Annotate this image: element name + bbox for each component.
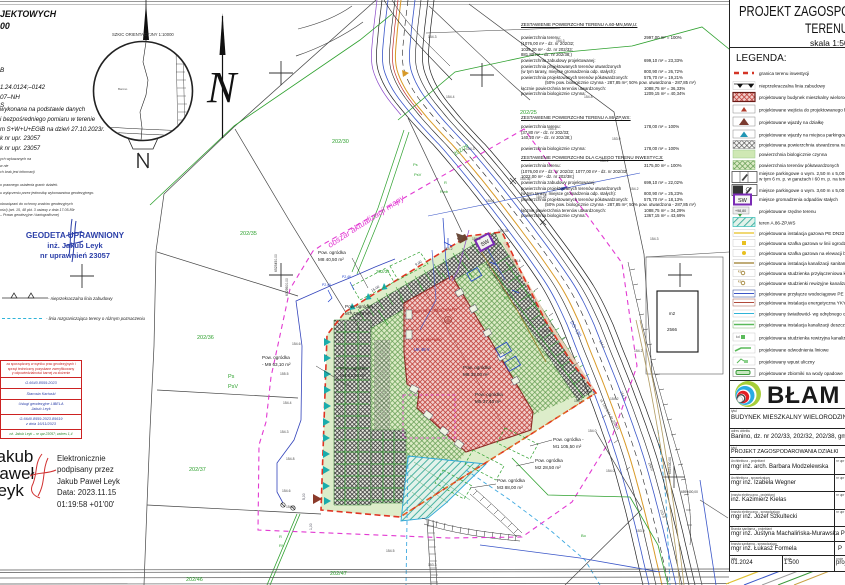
svg-text:154.3: 154.3 [466, 147, 475, 151]
svg-text:+98,80: +98,80 [735, 209, 746, 213]
svg-text:R: R [444, 180, 447, 185]
svg-text:Banino: Banino [118, 87, 128, 91]
svg-text:projektowane przyłącze wodocią: projektowane przyłącze wodociągowe PE DN [759, 292, 845, 297]
svg-text:N: N [206, 63, 239, 112]
svg-text:projektowana instalacja kanali: projektowana instalacja kanalizacji desz… [759, 323, 845, 328]
svg-text:154.1: 154.1 [528, 299, 537, 303]
svg-text:teren A.86-ZP,WS: teren A.86-ZP,WS [759, 221, 795, 226]
svg-text:projektowany wpust uliczny: projektowany wpust uliczny [759, 360, 815, 365]
svg-text:154.0: 154.0 [647, 462, 654, 471]
svg-text:granica terenu inwestycji: granica terenu inwestycji [759, 71, 809, 76]
svg-text:154.3: 154.3 [280, 430, 289, 434]
svg-text:154.1: 154.1 [619, 391, 627, 400]
svg-text:Pow. ogródka: Pow. ogródka [340, 366, 368, 371]
svg-text:Pow. ogródka: Pow. ogródka [535, 458, 563, 463]
svg-text:M3 88,00 m²: M3 88,00 m² [497, 485, 523, 490]
svg-text:154.4: 154.4 [512, 259, 521, 263]
svg-text:projektowany budynek mieszkaln: projektowany budynek mieszkalny wielorod… [759, 95, 845, 100]
svg-text:Rwb: Rwb [440, 189, 449, 194]
svg-text:obszar aktualizacji mapy: obszar aktualizacji mapy [326, 193, 406, 250]
svg-text:miejsce parkingowe o wym. 3,60: miejsce parkingowe o wym. 3,60 m x 5,00 … [759, 188, 845, 193]
svg-text:m2: m2 [669, 311, 676, 316]
svg-text:5,00: 5,00 [302, 493, 306, 500]
svg-text:154.2: 154.2 [574, 399, 583, 403]
svg-text:SW: SW [738, 198, 748, 204]
svg-text:154.4: 154.4 [472, 237, 481, 241]
svg-text:projektowana instalacja kanali: projektowana instalacja kanalizacji sani… [759, 261, 845, 266]
svg-text:154.2: 154.2 [630, 187, 639, 191]
svg-text:154.5: 154.5 [386, 549, 395, 553]
svg-text:153.9: 153.9 [636, 529, 645, 533]
svg-text:6599400,00: 6599400,00 [681, 490, 698, 494]
svg-text:M4 92,50 m²: M4 92,50 m² [340, 373, 366, 378]
svg-text:Pow. ogródka: Pow. ogródka [318, 250, 346, 255]
svg-text:projektowana instalacja energe: projektowana instalacja energetyczna YKY… [759, 301, 845, 306]
svg-text:ks: ks [738, 280, 742, 284]
svg-text:- M9 63,10 m²: - M9 63,10 m² [262, 362, 291, 367]
svg-text:202/30: 202/30 [332, 139, 349, 145]
svg-text:projektowane studzienki rewizy: projektowane studzienki rewizyjne kanali… [759, 281, 845, 286]
svg-text:6525450.00: 6525450.00 [274, 254, 278, 272]
svg-text:2566: 2566 [667, 327, 678, 332]
svg-text:projektowana powierzchnia utw: projektowana powierzchnia utwardzona naw [759, 143, 845, 148]
svg-text:154.1: 154.1 [486, 199, 495, 203]
svg-text:R: R [508, 287, 511, 292]
svg-text:202/46: 202/46 [186, 577, 203, 583]
svg-text:RV: RV [504, 295, 510, 300]
svg-text:DG-430: DG-430 [568, 320, 582, 338]
svg-text:PsV: PsV [228, 384, 238, 390]
svg-text:6525400.00: 6525400.00 [668, 457, 672, 474]
svg-text:M2 28,50 m²: M2 28,50 m² [535, 465, 561, 470]
svg-text:projektowane rzędne terenu: projektowane rzędne terenu [759, 209, 816, 214]
svg-text:154.0: 154.0 [542, 329, 551, 333]
svg-text:powierzchnia biologicznie czyn: powierzchnia biologicznie czynna [759, 152, 827, 157]
svg-text:154.4: 154.4 [446, 95, 455, 99]
svg-text:M1 105,50 m²: M1 105,50 m² [553, 444, 582, 449]
svg-text:R: R [279, 534, 282, 539]
svg-text:Pow. ogródka: Pow. ogródka [497, 478, 525, 483]
svg-text:202/47: 202/47 [330, 571, 347, 577]
svg-text:154.8: 154.8 [286, 457, 295, 461]
svg-text:154.3: 154.3 [428, 35, 437, 39]
svg-text:ks: ks [738, 270, 742, 274]
svg-text:Ps: Ps [413, 162, 418, 167]
svg-text:projektowana szafka gazowa w l: projektowana szafka gazowa w linii ogrod… [759, 241, 845, 246]
svg-text:miejsce gromadzenia odpadów st: miejsce gromadzenia odpadów stałych [759, 197, 838, 202]
svg-text:154.2: 154.2 [610, 397, 619, 401]
svg-text:M5 37,40 m²: M5 37,40 m² [475, 399, 501, 404]
svg-text:P2.46: P2.46 [342, 275, 351, 279]
svg-text:154.0: 154.0 [588, 429, 597, 433]
svg-text:projektowane odwodnienia linio: projektowane odwodnienia liniowe [759, 348, 829, 353]
svg-text:Pow. ogródka: Pow. ogródka [475, 392, 503, 397]
svg-text:M7 43,20 m²: M7 43,20 m² [345, 311, 371, 316]
svg-text:M8 40,50 m²: M8 40,50 m² [318, 257, 344, 262]
svg-text:PsV: PsV [414, 172, 422, 177]
svg-text:154.5: 154.5 [286, 505, 295, 509]
svg-text:projektowana instalacja gazowa: projektowana instalacja gazowa PE DN32 [759, 231, 845, 236]
svg-text:6029500.00: 6029500.00 [285, 278, 289, 296]
svg-text:projektowane wejścia do projek: projektowane wejścia do projektowanego b… [759, 108, 845, 113]
svg-text:202/31: 202/31 [376, 269, 390, 274]
svg-text:Pow. ogródka: Pow. ogródka [345, 304, 373, 309]
svg-text:P2.46: P2.46 [322, 283, 331, 287]
svg-text:154.1: 154.1 [556, 359, 565, 363]
svg-text:RV: RV [279, 543, 285, 548]
svg-text:kd: kd [736, 335, 740, 339]
svg-text:SZKIC ORIENTACYJNY 1:10000: SZKIC ORIENTACYJNY 1:10000 [112, 32, 174, 37]
svg-text:Ps: Ps [228, 374, 235, 380]
svg-text:154.6: 154.6 [282, 489, 291, 493]
svg-text:powierzchnia terenów półutward: powierzchnia terenów półutwardzonych [759, 163, 840, 168]
svg-text:202/36: 202/36 [197, 335, 214, 341]
svg-text:202/35: 202/35 [240, 231, 257, 237]
svg-text:154.0: 154.0 [606, 469, 615, 473]
svg-text:projektowany światłowód- wg od: projektowany światłowód- wg odrębnego op… [759, 312, 845, 317]
svg-text:projektowane zbiorniki na wody: projektowane zbiorniki na wody opadowe [759, 371, 843, 376]
svg-text:Pow. ogródka: Pow. ogródka [463, 365, 491, 370]
svg-text:Pow. ogródka: Pow. ogródka [262, 355, 290, 360]
svg-text:M6 33,00 m²: M6 33,00 m² [463, 372, 489, 377]
svg-text:miejsce parkingowe o wym. 2,50: miejsce parkingowe o wym. 2,50 m x 5,00 … [759, 171, 845, 176]
svg-text:1,00: 1,00 [309, 523, 313, 530]
svg-text:154.3: 154.3 [650, 237, 659, 241]
svg-text:155.5: 155.5 [280, 372, 289, 376]
svg-text:UK 48 V: UK 48 V [414, 347, 430, 352]
svg-text:153.9: 153.9 [612, 137, 621, 141]
svg-text:154.2: 154.2 [634, 349, 643, 353]
svg-text:nieprzekraczalna linia zabudow: nieprzekraczalna linia zabudowy [759, 84, 826, 89]
svg-text:projektowane wjazdy na miejsca: projektowane wjazdy na miejsca parkingow… [759, 133, 845, 138]
svg-text:⊕: ⊕ [446, 318, 449, 323]
svg-text:154.35: 154.35 [498, 229, 508, 233]
svg-text:153.3: 153.3 [428, 563, 437, 567]
svg-text:projektowana studzienka rewizy: projektowana studzienka rewizyjna kanali… [759, 336, 845, 341]
svg-text:(4)+45;485+5000: (4)+45;485+5000 [414, 338, 442, 342]
svg-text:Pow. ogródka -: Pow. ogródka - [553, 437, 584, 442]
svg-text:projektowana szafka gazowa na: projektowana szafka gazowa na elewacji b… [759, 251, 845, 256]
svg-text:BŁAM: BŁAM [767, 382, 840, 408]
svg-text:202/37: 202/37 [189, 467, 206, 473]
svg-text:154.6: 154.6 [292, 342, 301, 346]
svg-text:Bo: Bo [581, 533, 587, 538]
svg-text:154.0: 154.0 [598, 340, 606, 349]
svg-text:154.4: 154.4 [283, 401, 292, 405]
svg-text:w tym 6 m. p. w garażach i 60: w tym 6 m. p. w garażach i 60 m. p. na t… [759, 177, 845, 182]
svg-text:projektowane wjazdy na działkę: projektowane wjazdy na działkę [759, 120, 824, 125]
svg-text:projektowana studzienka przyłą: projektowana studzienka przyłączeniowa k… [759, 271, 845, 276]
